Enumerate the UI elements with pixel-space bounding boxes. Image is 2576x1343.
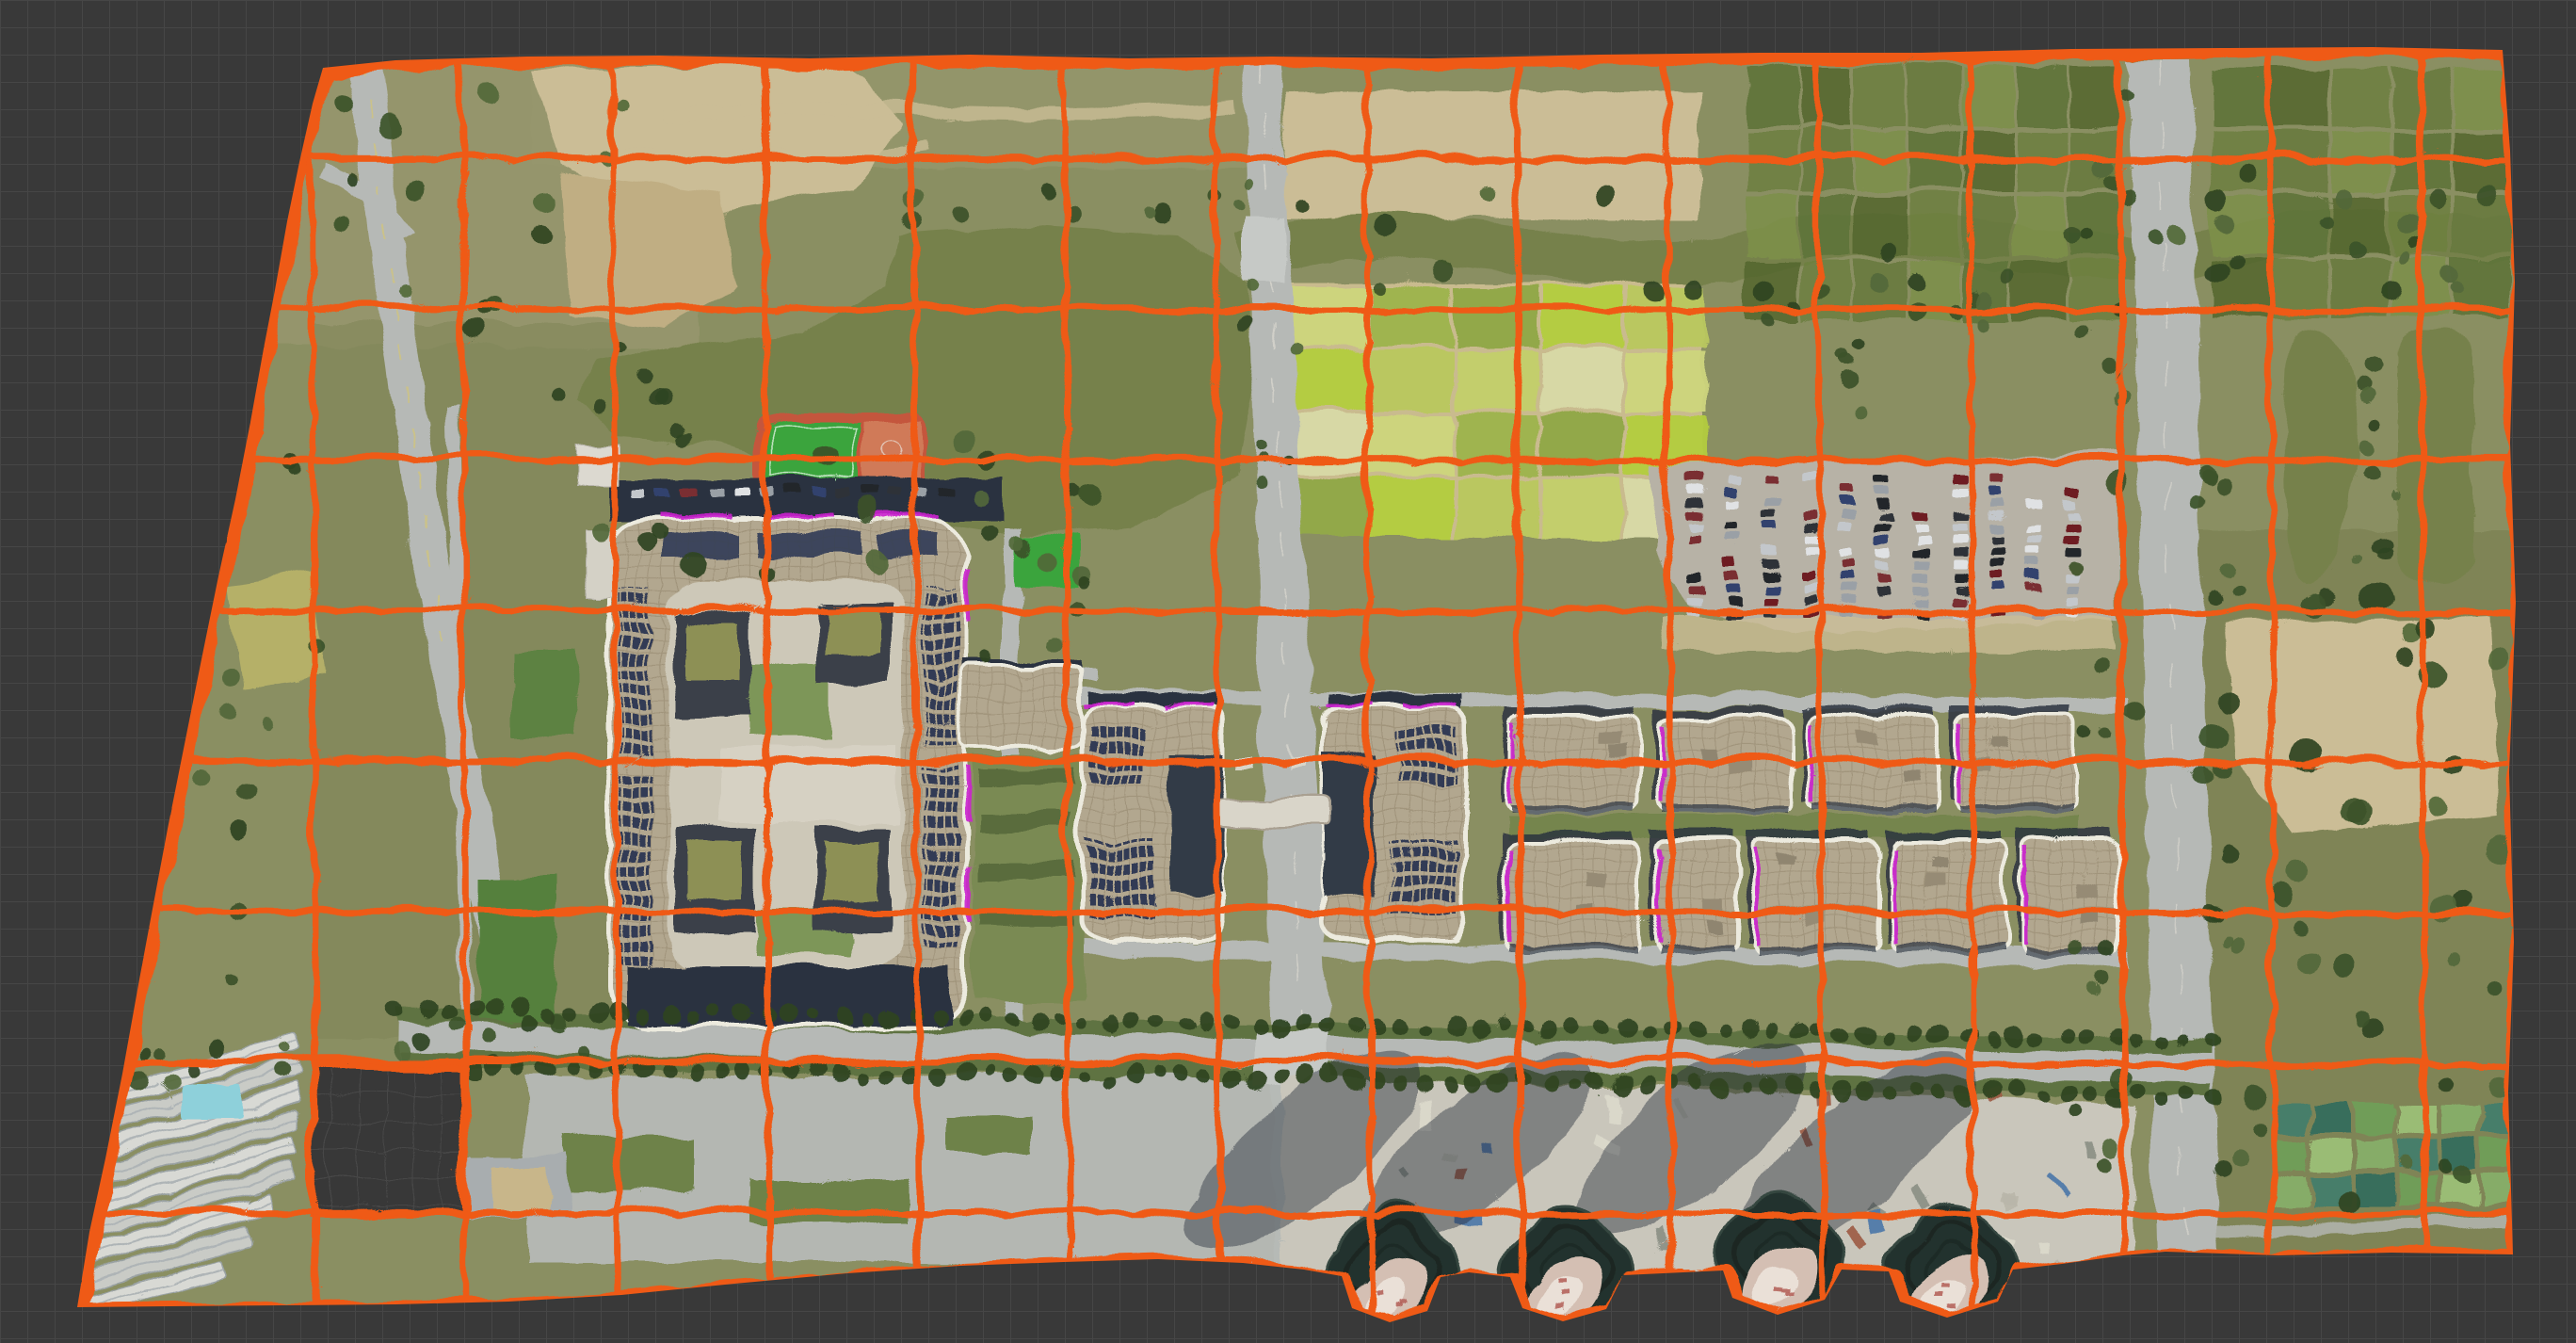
tile-grid-row [60,756,2533,759]
tile-grid-column [1965,32,1970,1334]
tree [1639,275,1662,298]
parking-lot-area [1652,450,2114,648]
boulevard-tree [929,1006,943,1020]
tree [476,80,495,99]
parked-car [1909,581,1924,590]
tree [2378,276,2399,297]
boulevard-tree [1222,1064,1242,1084]
boulevard-tree [1683,1018,1701,1036]
parked-car [1798,471,1812,479]
tree [390,1040,407,1057]
boulevard-tree [1001,1067,1015,1081]
tree [2211,1155,2227,1171]
tree [2091,1153,2108,1170]
tile-grid-column [459,32,463,1334]
tree [1292,195,1305,208]
tree [1375,213,1396,235]
boulevard-tree [802,1005,814,1017]
parked-car [1988,544,2002,553]
boulevard-tree [1151,1067,1164,1080]
boulevard-tree [2002,1021,2022,1042]
tree [2099,722,2112,736]
parked-car [1762,593,1776,602]
roof-unit [1988,732,2004,743]
garage-car [883,484,898,493]
tree [1837,348,1850,362]
tree [2443,947,2456,961]
green-roof-sw [682,838,740,895]
boulevard-tree [506,995,523,1013]
boulevard-tree [1460,1069,1480,1089]
verge-south-3 [942,1111,1026,1149]
boulevard-tree [826,1060,844,1078]
tile-grid-column [2417,32,2422,1334]
boulevard-tree [562,1060,574,1073]
cap-debris [1780,1288,1788,1293]
tree [977,651,990,664]
hedge-1 [975,765,1070,782]
tree [2204,587,2216,599]
block-south-edge [1955,800,2069,807]
tree [2227,1143,2244,1160]
tree [2396,1153,2410,1167]
roof-unit [1773,849,1790,861]
tree [2316,211,2329,224]
tree [2475,181,2495,201]
tree [330,214,345,229]
tile-grid-column [760,32,765,1334]
vegetable-plot-cell [2066,192,2117,252]
tree [2092,967,2105,980]
boulevard-tree [1098,1011,1114,1027]
tree [2078,722,2092,736]
parked-car [1798,520,1812,528]
parked-car [1835,544,1849,553]
boulevard-tree [1784,1074,1801,1091]
tree [861,545,884,569]
boulevard-tree [415,996,432,1013]
parked-car [1759,508,1773,516]
parked-car [1800,581,1814,590]
roof-unit [1899,769,1916,780]
tree [2212,473,2230,492]
tree [950,426,972,447]
parked-car [2024,544,2038,553]
tree [2350,548,2361,559]
tile-grid-column [609,32,614,1334]
tree [272,1064,285,1077]
parked-car [1721,483,1735,492]
tree [2358,577,2388,607]
block-south-edge [1659,802,1783,810]
parked-car [1798,593,1812,602]
boulevard-tree [1613,1013,1633,1033]
cap-debris [1944,1301,1952,1305]
parked-car [1948,471,1962,479]
vegetable-plot-cell [2394,1172,2432,1202]
paddy-field-cell [1452,411,1533,471]
boulevard-tree [657,1060,671,1075]
tree [1074,480,1097,503]
tree [1241,174,1250,184]
vegetable-plot-cell [2479,1136,2517,1166]
tree [2238,1083,2260,1105]
boulevard-tree [2125,1081,2139,1095]
boulevard-tree [1025,1009,1044,1027]
solar-east-2 [921,763,955,942]
parked-car [1872,581,1886,590]
tree [276,1040,288,1052]
parked-car [1986,508,2000,516]
block-south-edge [1808,801,1930,809]
parked-car [1799,544,1813,553]
tile-grid-column [1212,32,1216,1334]
parked-car [1948,532,1962,541]
tree [1244,279,1255,290]
tree [527,220,547,240]
paddy-field-cell [1452,347,1533,407]
swimming-pool [177,1080,239,1114]
tree [2224,251,2241,267]
parked-car [1872,483,1886,492]
boulevard-tree [926,1065,943,1083]
block-south-edge [1753,942,1870,949]
orthophoto-layer[interactable] [60,32,2533,1343]
boulevard-tree [1984,1027,1998,1042]
tree [2439,265,2457,283]
vegetable-plot-cell [2268,66,2325,124]
vegetable-plot-cell [2449,192,2505,251]
sw-roof-garden [490,1163,546,1205]
parked-car [1910,593,1924,602]
parked-car [1799,532,1813,541]
tree [152,1043,164,1055]
parked-car [1988,569,2002,577]
tile-grid-column [1362,32,1367,1334]
boulevard-tree [1120,1008,1139,1027]
tree [190,765,209,784]
tree [2217,563,2230,576]
tree [2354,434,2370,450]
tree [2097,938,2112,953]
boulevard-tree [2203,1085,2219,1101]
boulevard-tree [2075,1026,2091,1042]
boulevard-tree [980,1066,991,1077]
boulevard-tree [1101,1072,1113,1084]
tree [477,1027,491,1041]
tree [1369,277,1381,289]
tree [222,968,234,980]
roof-unit [1700,892,1721,905]
tree [2297,950,2318,971]
tree [2084,979,2097,992]
tile-grid-row [60,304,2533,307]
roof-unit [1922,869,1942,882]
boulevard-tree [683,1007,697,1021]
tree [1075,573,1087,584]
vegetable-plot-cell [2352,1100,2390,1130]
paddy-field-cell [1367,475,1448,535]
block-south-edge [1892,942,2000,949]
boulevard-tree [1978,1077,1996,1095]
tile-grid-column [1814,32,1819,1334]
cap-debris [1932,1287,1940,1292]
boulevard-tree [2174,1029,2186,1042]
tree [677,548,701,573]
vegetable-plot-cell [1905,192,1956,252]
parked-car [1760,520,1774,528]
boulevard-tree [1540,1071,1556,1087]
tree [260,713,272,725]
tree [951,204,966,219]
soccer-pitch [765,417,855,477]
parked-car [1759,471,1773,479]
tree [1864,269,1886,291]
tree [2195,461,2213,479]
green-roof-se [821,838,876,897]
vegetable-plot-cell [2310,1136,2347,1166]
vegetable-plot-cell [1744,192,1795,252]
boulevard-tree [953,1063,971,1081]
boulevard-tree [2202,1030,2214,1043]
path-top-1 [659,104,1233,113]
tree [969,486,983,500]
tree [1430,256,1451,277]
tree [2098,1134,2116,1152]
tree [1902,267,1921,286]
garage-car [832,484,847,493]
paddy-field-cell [1452,283,1533,343]
boulevard-tree [1637,1023,1650,1036]
tree [2447,283,2459,295]
tree [2227,933,2243,949]
boulevard-tree [2124,1028,2137,1042]
tree [215,699,232,716]
tree [2386,485,2396,495]
garage-car [705,484,720,493]
tree [1851,403,1863,415]
tree [2192,762,2211,781]
tree [2371,533,2388,550]
boulevard-tree [2003,1076,2021,1095]
parked-car [2064,508,2078,516]
boulevard-tree [2056,1082,2072,1098]
parked-car [1724,495,1738,504]
vegetable-plot-cell [2437,1100,2474,1130]
tree [2332,185,2351,203]
tile-grid-column [1513,32,1518,1334]
roof-unit [1855,730,1876,743]
tree [1285,338,1299,352]
roof-unit [2078,912,2095,923]
parked-car [1686,520,1700,528]
tree [2485,647,2504,667]
vegetable-plot-cell [2352,1136,2390,1166]
boulevard-tree [1073,1013,1085,1025]
boulevard-tree [1441,1011,1462,1031]
tree [2348,236,2366,254]
tree [1476,182,1492,198]
tree [201,330,222,350]
boulevard-tree [657,1000,676,1019]
tree [2425,793,2443,811]
paddy-field-cell [1367,347,1448,407]
tree [1006,531,1022,546]
boulevard-tree [1266,1014,1286,1034]
parked-car [1684,508,1699,516]
boulevard-tree [685,1062,700,1076]
tile-grid-column [1664,32,1668,1334]
tile-grid-row [60,455,2533,458]
boulevard-tree [705,1004,717,1016]
missing-tile-hole[interactable] [311,1064,459,1211]
boulevard-tree [1291,1065,1311,1085]
garage-car [731,484,746,493]
boulevard-tree [857,1009,870,1022]
office-block-roof [2020,833,2114,951]
tree [2092,657,2106,671]
tree [2228,579,2241,592]
parked-car [1725,532,1739,541]
boulevard-tree [1170,1067,1185,1082]
vegetable-plot-cell [2479,1100,2517,1130]
tree [1235,313,1248,326]
parked-car [2061,569,2075,577]
tree [409,1028,427,1046]
tree [205,1037,222,1054]
garage-car [781,484,797,493]
tree [1592,181,1612,201]
tree [1682,274,1701,294]
tile-grid-row [60,1208,2533,1211]
parked-car [1947,520,1961,528]
boulevard-tree [2149,1088,2165,1103]
boulevard-tree [1176,1012,1190,1027]
parked-car [1722,520,1736,528]
tree [2071,322,2085,335]
boulevard-tree [1468,1019,1485,1036]
boulevard-tree [1492,1017,1505,1030]
tree [2448,1160,2469,1181]
roof-unit [1703,917,1720,929]
boulevard-tree [2153,1030,2165,1043]
boulevard-tree [711,1062,723,1075]
boulevard-tree [1001,1011,1014,1024]
tree [2214,208,2233,227]
tree [633,364,647,379]
boulevard-tree [876,1005,894,1023]
parked-car [1723,593,1737,602]
tree [2350,1008,2365,1023]
boulevard-tree [1344,1012,1359,1027]
boulevard-tree [482,995,499,1012]
parked-car [2024,569,2038,577]
parked-car [1685,471,1699,479]
boulevard-tree [2033,1086,2045,1098]
boulevard-tree [1736,1018,1753,1035]
parked-car [1838,483,1852,492]
vegetable-plot-cell [2208,66,2264,124]
parked-car [1912,532,1926,541]
tree [2066,558,2078,570]
boulevard-tree [1612,1072,1632,1092]
boulevard-tree [1761,1022,1773,1034]
tree [530,188,551,209]
boulevard-tree [1247,1070,1264,1088]
tree [1836,367,1856,387]
vegetable-plot-cell [2394,1100,2432,1130]
twin-left-solar-1 [1085,838,1151,914]
office-block-roof [1749,836,1874,947]
vegetable-plot-cell [2268,192,2325,251]
tree [403,175,423,195]
parked-car [1988,557,2002,565]
tree [2003,266,2017,280]
boulevard-tree [386,1001,400,1015]
tree [342,169,355,182]
parked-car [1874,557,1888,565]
parked-car [1683,593,1698,602]
tree [515,1011,531,1027]
parking-dirt-edge [1657,614,2109,648]
parked-car [2026,532,2040,541]
tree [136,1043,148,1055]
parked-car [1909,569,1924,577]
solar-array-3 [876,529,932,554]
reconstruction-scene[interactable] [0,0,2576,1343]
parked-car [1761,569,1775,577]
parked-car [2063,581,2077,590]
tree [2393,247,2407,260]
tree [634,528,652,547]
tree [1151,198,1171,218]
boulevard-tree [584,997,604,1017]
tile-grid-row [60,1058,2533,1060]
tree [812,441,834,463]
boulevard-tree [1906,1020,1923,1037]
boulevard-tree [1051,1009,1063,1021]
parked-car [1911,508,1925,516]
roof-unit [1596,728,1617,741]
bridge-north [1239,213,1280,281]
tree [979,521,994,536]
boulevard-tree [1828,1077,1848,1097]
tree [1038,549,1055,566]
paddy-field-cell [1282,283,1363,343]
tree [2120,696,2140,716]
parked-car [1910,557,1924,565]
boulevard-tree [876,1066,890,1080]
boulevard-tree [1879,1027,1892,1041]
paddy-field-cell [1537,475,1618,535]
tree [2061,223,2078,240]
tree [2103,472,2124,493]
boulevard-tree [1194,1067,1207,1080]
tree [1230,196,1240,206]
twin-left-solar-2 [1085,725,1141,782]
vegetable-plot-cell [2066,62,2117,122]
viewport-canvas[interactable] [0,0,2576,1343]
vegetable-plot-cell [2310,1100,2347,1130]
parked-car [1761,544,1775,553]
boulevard-tree [1567,1078,1578,1090]
paddy-field-cell [1452,475,1533,535]
office-block-roof [1655,716,1787,808]
tree [664,419,678,433]
tree [1038,182,1052,196]
tree [462,318,482,338]
twin-right-solar-1 [1388,838,1454,914]
